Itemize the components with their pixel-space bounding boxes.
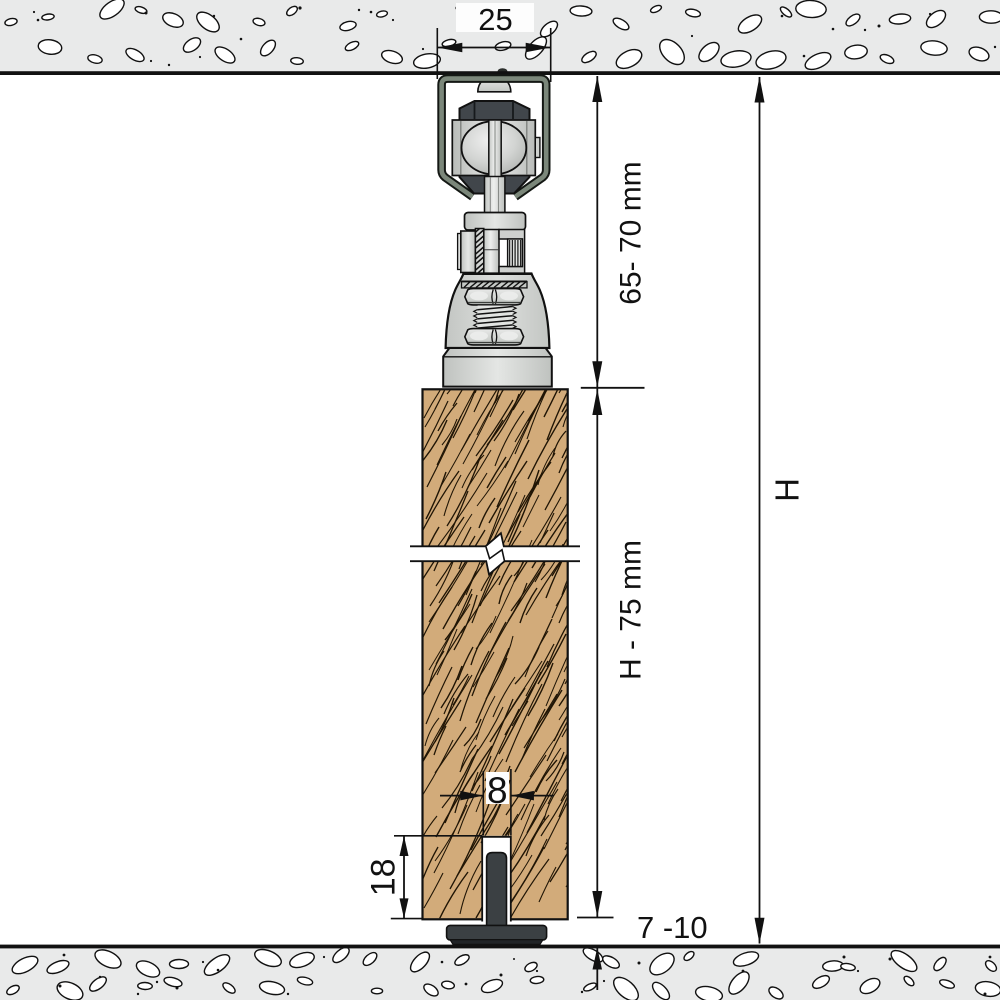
svg-text:7 -10: 7 -10 — [637, 910, 708, 945]
svg-text:18: 18 — [365, 858, 403, 896]
svg-text:8: 8 — [487, 770, 508, 811]
svg-text:65- 70 mm: 65- 70 mm — [615, 161, 648, 304]
svg-text:H - 75 mm: H - 75 mm — [615, 540, 648, 680]
svg-text:25: 25 — [478, 2, 512, 37]
svg-text:H: H — [769, 478, 806, 502]
